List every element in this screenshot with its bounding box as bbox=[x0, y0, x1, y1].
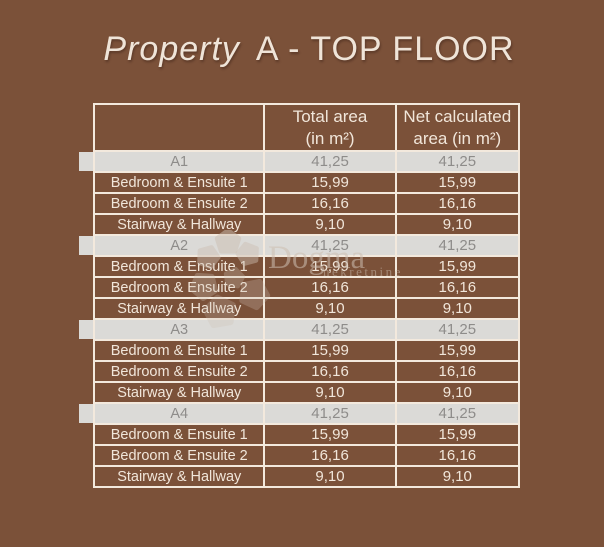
room-label-cell: Stairway & Hallway bbox=[95, 467, 265, 486]
room-label-cell: Bedroom & Ensuite 1 bbox=[95, 173, 265, 192]
total-area-cell: 41,25 bbox=[265, 152, 396, 171]
table-row: Bedroom & Ensuite 115,9915,99 bbox=[95, 255, 518, 276]
net-area-cell: 9,10 bbox=[397, 215, 518, 234]
total-area-cell: 41,25 bbox=[265, 320, 396, 339]
page: { "title": { "property": "Property", "fl… bbox=[0, 0, 604, 547]
room-label-cell: A4 bbox=[95, 404, 265, 423]
total-area-cell: 15,99 bbox=[265, 257, 396, 276]
table-row: Stairway & Hallway9,109,10 bbox=[95, 465, 518, 486]
total-area-cell: 9,10 bbox=[265, 383, 396, 402]
net-area-cell: 41,25 bbox=[397, 404, 518, 423]
room-label-cell: Bedroom & Ensuite 1 bbox=[95, 257, 265, 276]
total-area-cell: 15,99 bbox=[265, 341, 396, 360]
total-area-cell: 16,16 bbox=[265, 278, 396, 297]
net-area-cell: 16,16 bbox=[397, 446, 518, 465]
total-area-cell: 16,16 bbox=[265, 446, 396, 465]
total-area-cell: 41,25 bbox=[265, 404, 396, 423]
page-title: PropertyA - TOP FLOOR bbox=[0, 30, 604, 69]
column-header-net-area-line2: area (in m²) bbox=[413, 128, 501, 149]
net-area-cell: 41,25 bbox=[397, 320, 518, 339]
net-area-cell: 16,16 bbox=[397, 278, 518, 297]
net-area-cell: 15,99 bbox=[397, 173, 518, 192]
net-area-cell: 15,99 bbox=[397, 341, 518, 360]
title-floor: A - TOP FLOOR bbox=[256, 30, 515, 68]
room-label-cell: A2 bbox=[95, 236, 265, 255]
section-row: A341,2541,25 bbox=[95, 318, 518, 339]
room-label-cell: A1 bbox=[95, 152, 265, 171]
table-row: Bedroom & Ensuite 115,9915,99 bbox=[95, 423, 518, 444]
room-label-cell: Bedroom & Ensuite 1 bbox=[95, 341, 265, 360]
room-label-cell: Bedroom & Ensuite 1 bbox=[95, 425, 265, 444]
section-row: A241,2541,25 bbox=[95, 234, 518, 255]
section-row: A441,2541,25 bbox=[95, 402, 518, 423]
room-label-cell: Bedroom & Ensuite 2 bbox=[95, 194, 265, 213]
column-header-total-area: Total area (in m²) bbox=[265, 105, 396, 150]
column-header-room bbox=[95, 105, 265, 150]
room-label-cell: Stairway & Hallway bbox=[95, 215, 265, 234]
table-row: Bedroom & Ensuite 216,1616,16 bbox=[95, 276, 518, 297]
column-header-total-area-line2: (in m²) bbox=[305, 128, 354, 149]
column-header-total-area-line1: Total area bbox=[293, 106, 368, 127]
table-row: Bedroom & Ensuite 216,1616,16 bbox=[95, 360, 518, 381]
total-area-cell: 41,25 bbox=[265, 236, 396, 255]
net-area-cell: 16,16 bbox=[397, 194, 518, 213]
total-area-cell: 16,16 bbox=[265, 194, 396, 213]
column-header-net-area-line1: Net calculated bbox=[403, 106, 511, 127]
table-header-row: Total area (in m²) Net calculated area (… bbox=[95, 105, 518, 150]
table-row: Stairway & Hallway9,109,10 bbox=[95, 213, 518, 234]
section-row: A141,2541,25 bbox=[95, 150, 518, 171]
room-label-cell: A3 bbox=[95, 320, 265, 339]
room-label-cell: Bedroom & Ensuite 2 bbox=[95, 278, 265, 297]
total-area-cell: 16,16 bbox=[265, 362, 396, 381]
net-area-cell: 9,10 bbox=[397, 299, 518, 318]
net-area-cell: 15,99 bbox=[397, 425, 518, 444]
total-area-cell: 9,10 bbox=[265, 467, 396, 486]
room-label-cell: Stairway & Hallway bbox=[95, 383, 265, 402]
total-area-cell: 9,10 bbox=[265, 299, 396, 318]
net-area-cell: 16,16 bbox=[397, 362, 518, 381]
table-row: Stairway & Hallway9,109,10 bbox=[95, 297, 518, 318]
net-area-cell: 15,99 bbox=[397, 257, 518, 276]
area-table: Total area (in m²) Net calculated area (… bbox=[93, 103, 520, 488]
title-property: Property bbox=[103, 30, 240, 68]
room-label-cell: Bedroom & Ensuite 2 bbox=[95, 362, 265, 381]
net-area-cell: 9,10 bbox=[397, 383, 518, 402]
total-area-cell: 15,99 bbox=[265, 425, 396, 444]
table-row: Bedroom & Ensuite 216,1616,16 bbox=[95, 192, 518, 213]
net-area-cell: 41,25 bbox=[397, 236, 518, 255]
total-area-cell: 9,10 bbox=[265, 215, 396, 234]
table-row: Bedroom & Ensuite 216,1616,16 bbox=[95, 444, 518, 465]
table-row: Bedroom & Ensuite 115,9915,99 bbox=[95, 339, 518, 360]
net-area-cell: 9,10 bbox=[397, 467, 518, 486]
room-label-cell: Stairway & Hallway bbox=[95, 299, 265, 318]
total-area-cell: 15,99 bbox=[265, 173, 396, 192]
table-body: A141,2541,25Bedroom & Ensuite 115,9915,9… bbox=[95, 150, 518, 486]
room-label-cell: Bedroom & Ensuite 2 bbox=[95, 446, 265, 465]
column-header-net-area: Net calculated area (in m²) bbox=[397, 105, 518, 150]
net-area-cell: 41,25 bbox=[397, 152, 518, 171]
table-row: Bedroom & Ensuite 115,9915,99 bbox=[95, 171, 518, 192]
table-row: Stairway & Hallway9,109,10 bbox=[95, 381, 518, 402]
